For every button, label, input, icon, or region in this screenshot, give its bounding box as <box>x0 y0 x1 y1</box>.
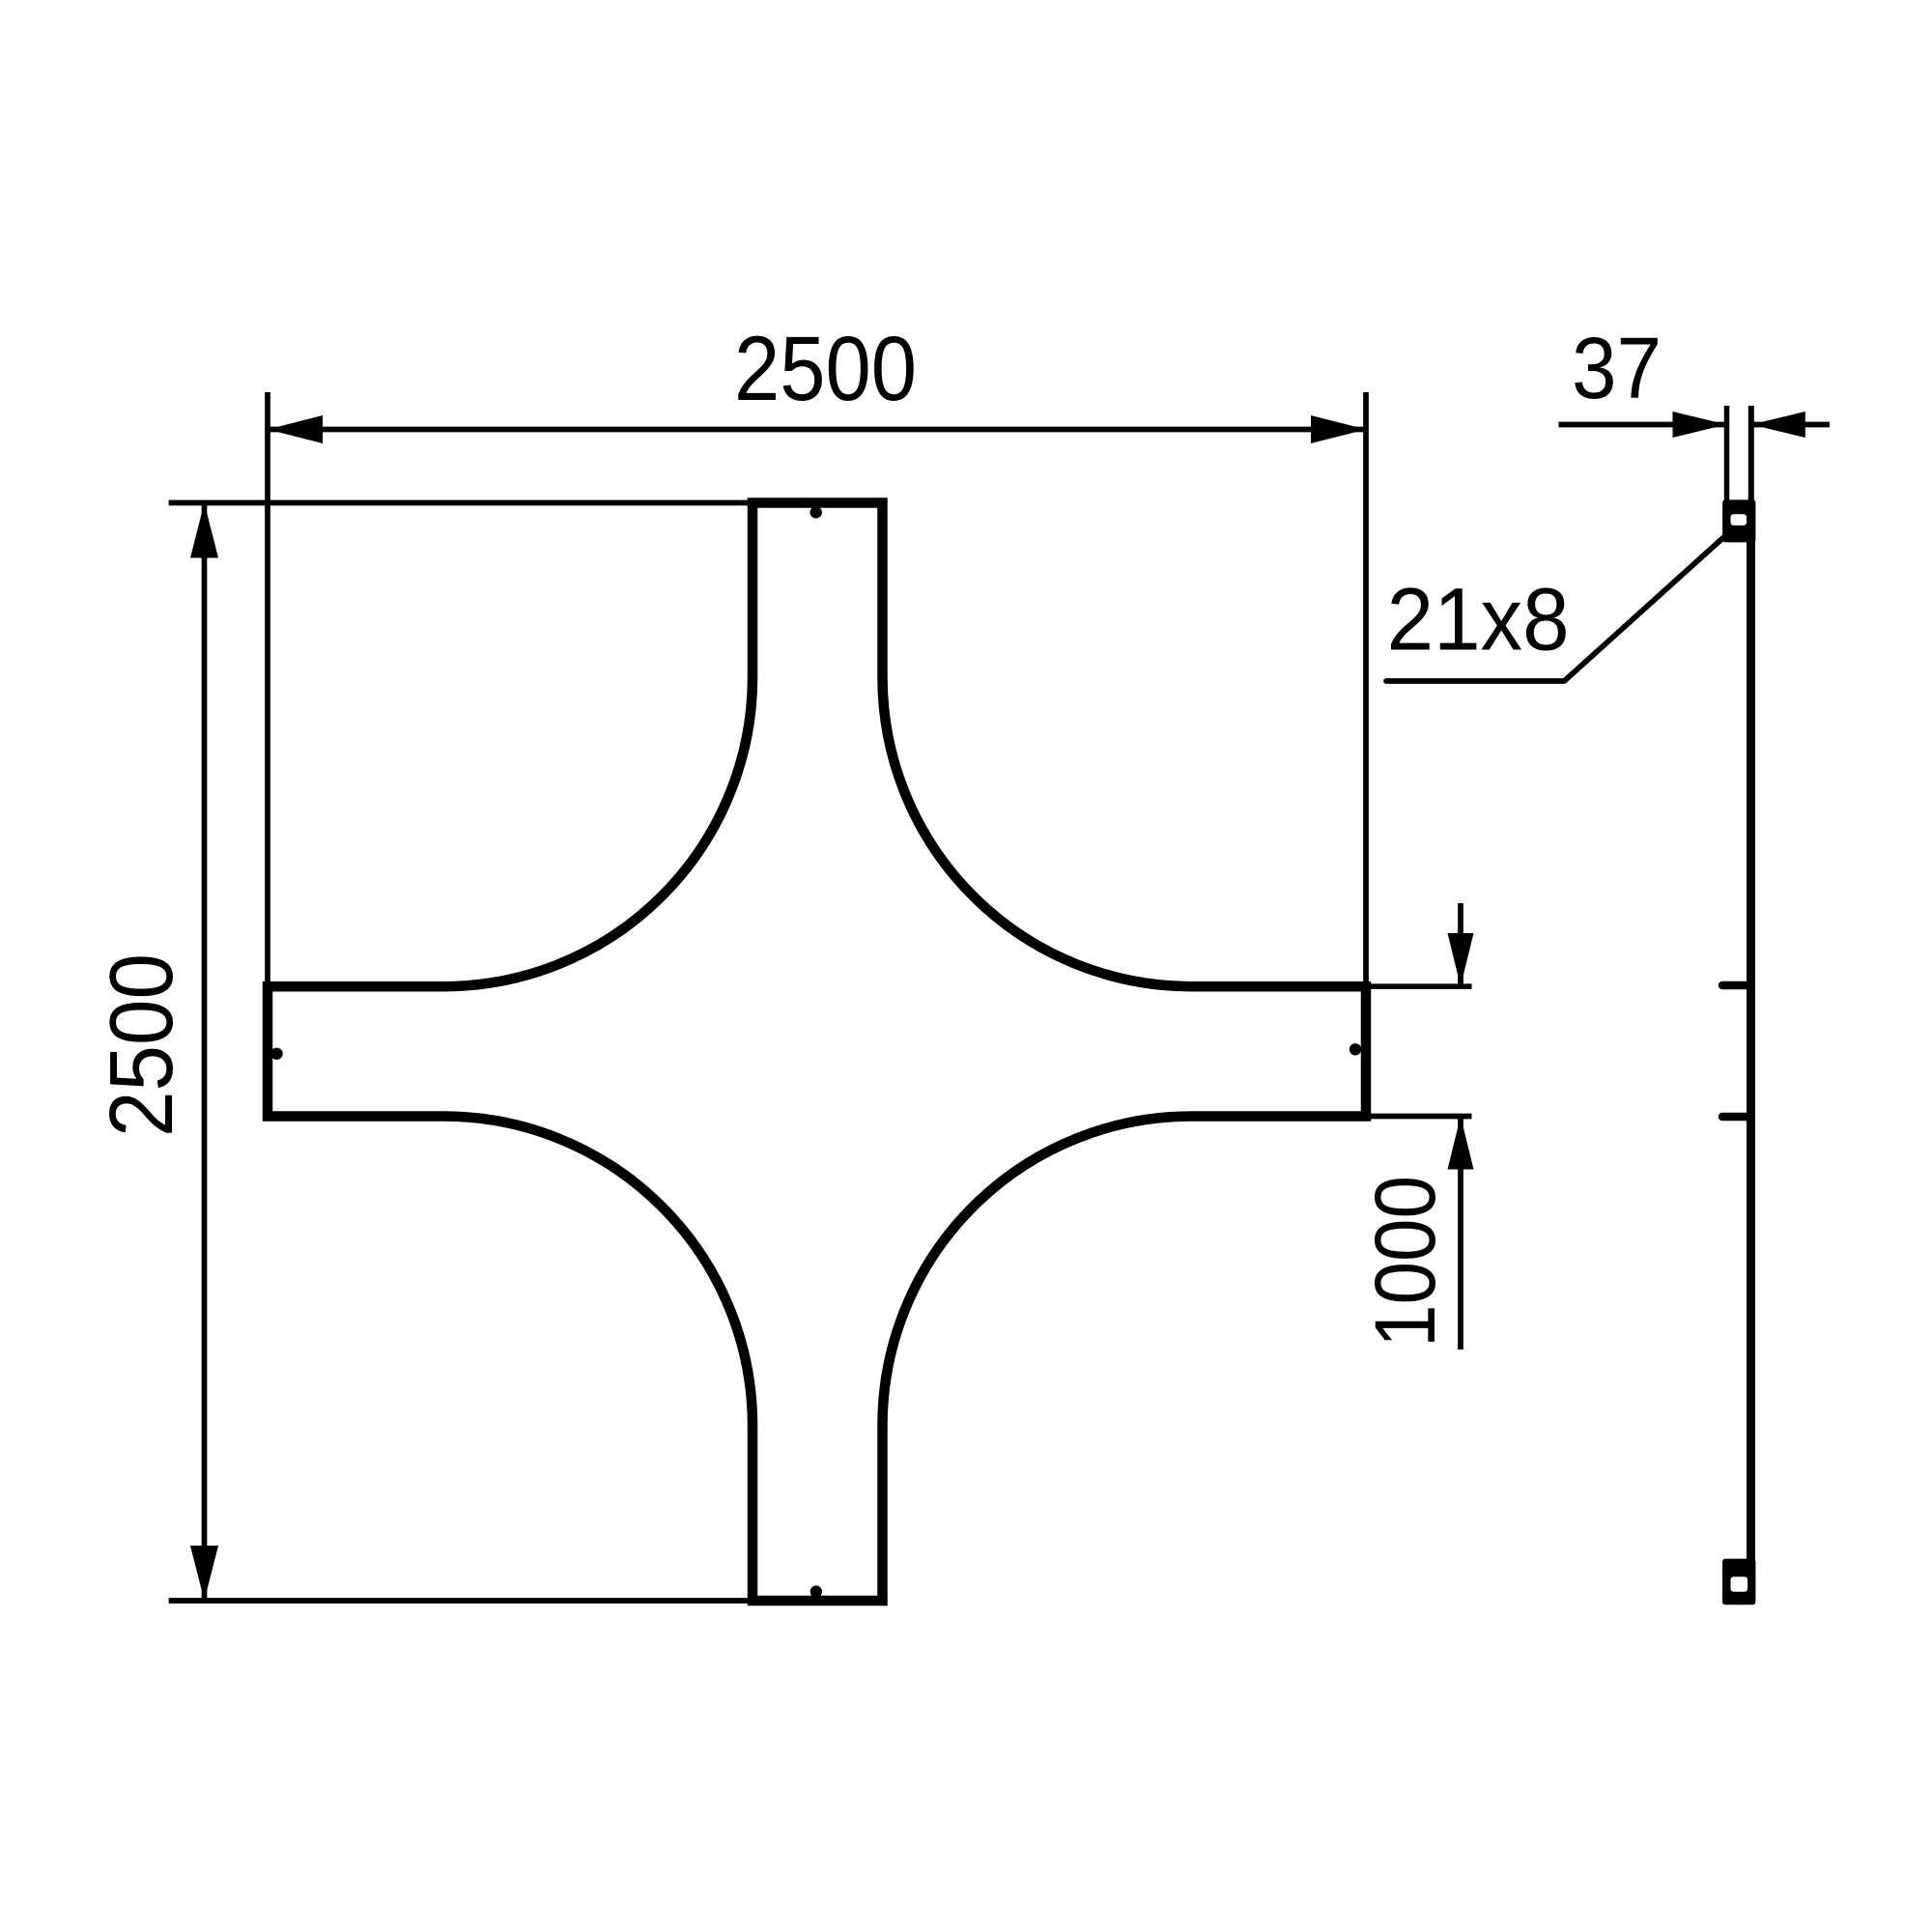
svg-text:37: 37 <box>1572 321 1662 417</box>
svg-text:21x8: 21x8 <box>1387 571 1570 669</box>
svg-text:2500: 2500 <box>734 318 917 420</box>
svg-text:2500: 2500 <box>91 953 191 1137</box>
svg-text:1000: 1000 <box>1356 1176 1453 1348</box>
